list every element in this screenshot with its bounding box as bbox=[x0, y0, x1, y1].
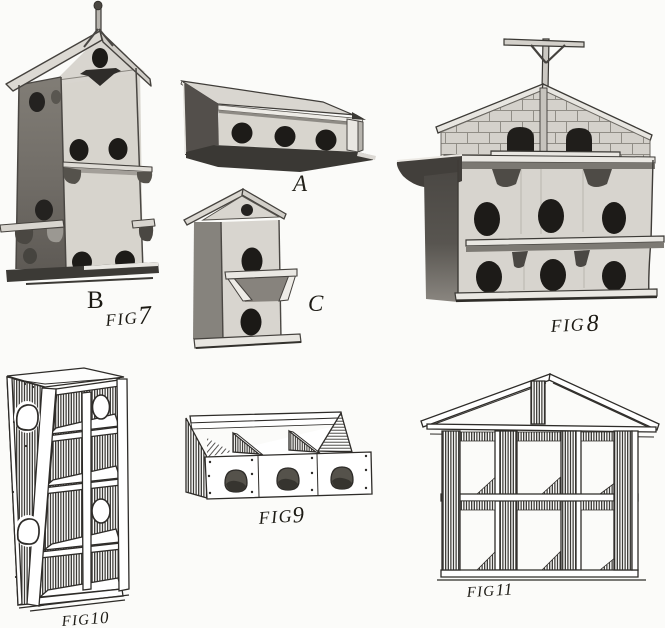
svg-text:9: 9 bbox=[292, 502, 306, 528]
svg-text:B: B bbox=[87, 287, 104, 314]
svg-text:11: 11 bbox=[495, 580, 514, 600]
svg-text:A: A bbox=[291, 171, 308, 196]
svg-text:FIG: FIG bbox=[257, 506, 294, 528]
svg-text:FIG: FIG bbox=[549, 314, 585, 336]
svg-text:FIG: FIG bbox=[465, 584, 495, 602]
svg-text:FIG: FIG bbox=[60, 612, 91, 628]
svg-text:FIG: FIG bbox=[104, 308, 139, 330]
svg-text:C: C bbox=[308, 291, 324, 316]
svg-text:10: 10 bbox=[90, 608, 110, 628]
svg-text:8: 8 bbox=[586, 311, 599, 338]
